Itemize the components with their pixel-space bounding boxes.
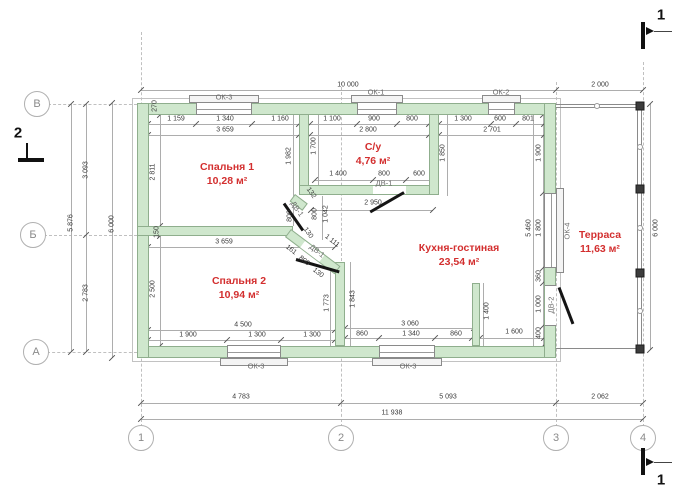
dim-label: 1 900 [536, 144, 543, 162]
dim-label: 5 460 [526, 219, 533, 237]
section-marker-2-tick [26, 143, 28, 159]
label-ok2: ОК-2 [493, 88, 510, 96]
dim-label: 1 400 [329, 171, 347, 178]
axis-circle-1: 1 [128, 425, 154, 451]
room-label-kitchen: Кухня-гостиная23,54 м² [419, 241, 499, 269]
axis-line-4 [643, 62, 644, 432]
section-marker-1-top-label: 1 [657, 8, 665, 23]
window-ok1 [357, 102, 397, 115]
dim-label: 270 [152, 100, 159, 112]
section-marker-1-bottom-bar [641, 448, 645, 475]
dimension-line [447, 115, 448, 196]
section-marker-1-top-arrow [646, 27, 654, 35]
wall-kitchen-stub [472, 283, 480, 346]
dimension-line [141, 419, 643, 420]
label-dv1-bath: ДВ-1 [376, 179, 393, 187]
section-marker-2-bar [18, 158, 44, 162]
dim-label: 5 093 [439, 394, 457, 401]
dimension-line [141, 403, 643, 404]
terrace-baluster [594, 103, 600, 109]
dimension-line [86, 104, 87, 352]
room-label-bed1: Спальня 110,28 м² [200, 160, 254, 188]
dim-label: 1 300 [454, 116, 472, 123]
dim-label: 600 [413, 171, 425, 178]
dim-label: 1 042 [323, 205, 330, 223]
dim-label: 2 800 [359, 127, 377, 134]
dim-label: 1 159 [167, 116, 185, 123]
section-marker-1-bottom-label: 1 [657, 473, 665, 488]
dim-label: 5 876 [68, 214, 75, 232]
dim-tick [647, 347, 653, 353]
dimension-line [148, 135, 544, 136]
room-label-terrace: Терраса11,63 м² [579, 228, 621, 256]
dim-label: 1 000 [536, 295, 543, 313]
dim-label: 10 000 [337, 82, 358, 89]
axis-line-b [44, 235, 137, 236]
room-label-bed2: Спальня 210,94 м² [212, 274, 266, 302]
dim-label: 3 060 [401, 321, 419, 328]
dim-label: 1 300 [303, 332, 321, 339]
label-ok3-kitchen: ОК-3 [400, 362, 417, 370]
window-ok4 [544, 193, 557, 268]
wall-bed1-bath [299, 114, 309, 195]
section-marker-1-bottom-line [654, 462, 672, 463]
dim-label: 6 000 [653, 219, 660, 237]
dim-label: 4 783 [232, 394, 250, 401]
axis-circle-b: Б [20, 222, 46, 248]
dim-label: 1 700 [311, 137, 318, 155]
dim-label: 2 811 [150, 164, 157, 181]
dim-label: 4 500 [234, 322, 252, 329]
dim-label: 1 773 [324, 294, 331, 312]
dim-label: 1 400 [484, 302, 491, 320]
dim-label: 2 500 [150, 280, 157, 298]
dim-label: 400 [536, 327, 543, 339]
dim-label: 2 701 [483, 127, 501, 134]
dim-label: 6 000 [109, 215, 116, 233]
axis-circle-a: А [23, 339, 49, 365]
section-marker-2-label: 2 [14, 126, 22, 141]
label-ok3-top: ОК-3 [216, 93, 233, 101]
terrace-post [636, 185, 645, 194]
window-ok3-kitchen [379, 345, 435, 358]
dim-label: 150 [154, 226, 161, 238]
dim-label: 1 843 [350, 290, 357, 308]
dim-label: 2 062 [591, 394, 609, 401]
terrace-post [636, 345, 645, 354]
dim-label: 800 [406, 116, 418, 123]
dim-label: 11 938 [382, 410, 403, 417]
terrace-post [636, 102, 645, 111]
section-marker-1-top-bar [641, 22, 645, 49]
dim-label: 800 [312, 208, 319, 220]
dim-label: 2 783 [83, 284, 90, 302]
dim-label: 360 [536, 270, 543, 282]
dim-label: 1 100 [323, 116, 341, 123]
dimension-line [556, 90, 643, 91]
wall-bath-right [429, 114, 439, 195]
dim-label: 2 000 [591, 82, 609, 89]
terrace-post [636, 269, 645, 278]
dim-label: 3 659 [216, 127, 234, 134]
dimension-line [533, 115, 534, 346]
axis-line-v [48, 104, 137, 105]
terrace-bottom-edge [556, 348, 643, 349]
dim-label: 2 950 [364, 200, 382, 207]
dim-label: 860 [356, 331, 368, 338]
label-ok1: ОК-1 [368, 88, 385, 96]
terrace-baluster [637, 308, 643, 314]
dim-label: 1 982 [286, 147, 293, 165]
axis-line-a [47, 352, 137, 353]
window-ok2 [488, 102, 515, 115]
dim-label: 1 300 [248, 332, 266, 339]
terrace-baluster [637, 144, 643, 150]
dim-label: 900 [368, 116, 380, 123]
dim-tick [109, 355, 115, 361]
dimension-line [650, 104, 651, 350]
terrace-baluster [637, 225, 643, 231]
dim-label: 1 160 [271, 116, 289, 123]
dim-label: 800 [287, 210, 294, 222]
wall-bath-bottom [299, 185, 439, 195]
axis-circle-v: В [24, 91, 50, 117]
dimension-line [148, 124, 544, 125]
label-ok4: ОК-4 [563, 223, 571, 240]
dim-label: 1 900 [179, 332, 197, 339]
dim-label: 800 [378, 171, 390, 178]
section-marker-1-bottom-arrow [646, 458, 654, 466]
window-ok3-bed2 [227, 345, 281, 358]
dim-label: 1 850 [440, 144, 447, 162]
axis-circle-3: 3 [543, 425, 569, 451]
dim-label: 1 600 [505, 329, 523, 336]
dim-label: 3 093 [83, 161, 90, 179]
axis-circle-2: 2 [328, 425, 354, 451]
dim-label: 860 [450, 331, 462, 338]
dim-label: 600 [494, 116, 506, 123]
dim-label: 3 659 [215, 239, 233, 246]
floor-plan: Спальня 110,28 м² С/у4,76 м² Спальня 210… [0, 0, 678, 502]
dimension-line [318, 115, 319, 185]
window-ok3-top [196, 102, 252, 115]
dim-label: 1 340 [402, 331, 420, 338]
wall-bottom [137, 346, 556, 358]
label-ok3-bed2: ОК-3 [248, 362, 265, 370]
label-dv2: ДВ-2 [547, 297, 555, 314]
dimension-line [345, 338, 544, 339]
dimension-line [148, 340, 335, 341]
section-marker-1-top-line [654, 31, 672, 32]
dimension-line [315, 180, 433, 181]
dim-label: 801 [522, 116, 534, 123]
wall-bed2-right [335, 262, 345, 346]
dimension-line [345, 328, 474, 329]
room-label-bath: С/у4,76 м² [356, 140, 391, 168]
dim-label: 1 800 [536, 219, 543, 237]
dim-label: 1 340 [216, 116, 234, 123]
